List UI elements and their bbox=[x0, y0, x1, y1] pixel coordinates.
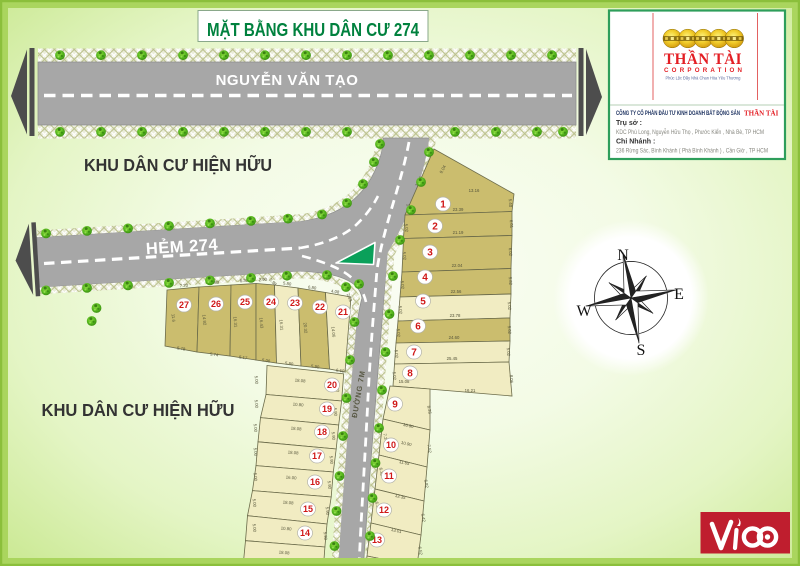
svg-text:20.32: 20.32 bbox=[303, 322, 309, 334]
svg-text:1: 1 bbox=[440, 200, 446, 211]
svg-text:2: 2 bbox=[432, 222, 438, 233]
svg-text:11.6: 11.6 bbox=[171, 314, 177, 323]
svg-text:10.80: 10.80 bbox=[293, 402, 305, 408]
svg-text:5.00: 5.00 bbox=[253, 423, 259, 432]
svg-text:5.02: 5.02 bbox=[392, 371, 398, 380]
svg-text:5.02: 5.02 bbox=[398, 305, 404, 314]
svg-text:23.39: 23.39 bbox=[453, 207, 464, 212]
svg-text:4: 4 bbox=[422, 273, 428, 284]
svg-text:Trụ sở :: Trụ sở : bbox=[616, 120, 642, 127]
svg-text:CÔNG TY CỔ PHẦN ĐẦU TƯ KINH DO: CÔNG TY CỔ PHẦN ĐẦU TƯ KINH DOANH BẤT ĐỘ… bbox=[616, 109, 740, 117]
svg-text:KHU DÂN CƯ HIỆN HỮU: KHU DÂN CƯ HIỆN HỮU bbox=[84, 154, 272, 175]
svg-text:15: 15 bbox=[303, 504, 313, 514]
svg-text:5.00: 5.00 bbox=[254, 399, 260, 408]
svg-text:5.00: 5.00 bbox=[252, 523, 258, 532]
svg-text:N: N bbox=[617, 247, 629, 264]
svg-text:5.02: 5.02 bbox=[396, 328, 402, 337]
svg-text:THẦN TÀI: THẦN TÀI bbox=[664, 50, 742, 68]
svg-text:S: S bbox=[637, 342, 646, 359]
svg-text:22.04: 22.04 bbox=[452, 263, 463, 268]
svg-text:7.20: 7.20 bbox=[179, 283, 188, 289]
svg-text:6.02: 6.02 bbox=[508, 248, 513, 257]
svg-text:5.00: 5.00 bbox=[254, 375, 260, 384]
svg-text:21.19: 21.19 bbox=[453, 230, 464, 235]
svg-text:12: 12 bbox=[379, 505, 389, 515]
svg-text:26: 26 bbox=[211, 299, 221, 309]
svg-text:16.21: 16.21 bbox=[465, 388, 476, 393]
svg-text:18.08: 18.08 bbox=[288, 450, 300, 456]
svg-text:20: 20 bbox=[327, 380, 337, 390]
svg-text:8: 8 bbox=[407, 369, 413, 380]
svg-text:5.02: 5.02 bbox=[394, 349, 400, 358]
svg-text:CORPORATION: CORPORATION bbox=[664, 67, 743, 74]
svg-text:21: 21 bbox=[338, 307, 348, 317]
svg-text:7: 7 bbox=[411, 348, 417, 359]
svg-text:18.08: 18.08 bbox=[279, 550, 291, 556]
svg-text:6.01: 6.01 bbox=[509, 220, 514, 229]
svg-text:18.08: 18.08 bbox=[283, 500, 295, 506]
svg-text:THẦN TÀI: THẦN TÀI bbox=[744, 110, 779, 118]
svg-text:5.02: 5.02 bbox=[507, 326, 512, 335]
svg-text:16.31: 16.31 bbox=[233, 316, 239, 328]
svg-text:MẶT BẰNG KHU DÂN CƯ 274: MẶT BẰNG KHU DÂN CƯ 274 bbox=[207, 19, 419, 40]
svg-text:16.31: 16.31 bbox=[279, 319, 285, 331]
svg-text:Phúc Lộc Đầy Nhà Chan Hòa Yêu: Phúc Lộc Đầy Nhà Chan Hòa Yêu Thương bbox=[666, 76, 741, 82]
svg-text:5.02: 5.02 bbox=[506, 348, 511, 357]
svg-text:17: 17 bbox=[312, 451, 322, 461]
svg-text:2.90: 2.90 bbox=[258, 277, 267, 283]
svg-text:19: 19 bbox=[322, 404, 332, 414]
svg-text:27: 27 bbox=[179, 300, 189, 310]
svg-text:25.45: 25.45 bbox=[447, 356, 458, 361]
svg-text:5: 5 bbox=[420, 297, 426, 308]
svg-text:24: 24 bbox=[266, 297, 276, 307]
svg-text:25: 25 bbox=[240, 297, 250, 307]
svg-text:6: 6 bbox=[415, 322, 421, 333]
svg-text:236 Rừng Sác, Bình Khánh ( Phà: 236 Rừng Sác, Bình Khánh ( Phà Bình Khán… bbox=[616, 146, 768, 155]
svg-text:11: 11 bbox=[384, 471, 394, 481]
svg-text:8.06: 8.06 bbox=[509, 375, 514, 384]
svg-text:9: 9 bbox=[392, 400, 398, 411]
svg-text:5.02: 5.02 bbox=[404, 223, 410, 232]
svg-text:18.08: 18.08 bbox=[291, 426, 303, 432]
svg-text:5.90: 5.90 bbox=[331, 431, 337, 440]
svg-text:5.02: 5.02 bbox=[402, 251, 408, 260]
svg-text:5.90: 5.90 bbox=[327, 480, 333, 489]
svg-text:5.82: 5.82 bbox=[508, 277, 513, 286]
svg-text:5.40: 5.40 bbox=[508, 199, 513, 208]
svg-text:10.80: 10.80 bbox=[281, 526, 293, 532]
svg-text:KHU DÂN CƯ HIỆN HỮU: KHU DÂN CƯ HIỆN HỮU bbox=[42, 399, 235, 420]
svg-text:22.56: 22.56 bbox=[451, 289, 462, 294]
svg-text:24.60: 24.60 bbox=[449, 335, 460, 340]
svg-text:5.90: 5.90 bbox=[323, 531, 329, 540]
svg-text:5.00: 5.00 bbox=[252, 498, 258, 507]
svg-text:KDC Phú Long, Nguyễn Hữu Thọ ,: KDC Phú Long, Nguyễn Hữu Thọ , Phước Kiể… bbox=[616, 127, 764, 136]
svg-text:16.43: 16.43 bbox=[259, 317, 265, 329]
svg-text:16.00: 16.00 bbox=[286, 475, 298, 481]
svg-text:5.90: 5.90 bbox=[325, 506, 331, 515]
svg-text:23: 23 bbox=[290, 298, 300, 308]
svg-text:5.02: 5.02 bbox=[507, 302, 512, 311]
svg-text:16: 16 bbox=[310, 477, 320, 487]
svg-text:Chi Nhánh :: Chi Nhánh : bbox=[616, 139, 655, 146]
svg-text:10: 10 bbox=[386, 440, 396, 450]
svg-text:5.02: 5.02 bbox=[400, 280, 406, 289]
svg-text:3: 3 bbox=[427, 248, 433, 259]
svg-text:14: 14 bbox=[300, 528, 310, 538]
svg-text:22: 22 bbox=[315, 302, 325, 312]
svg-text:14.06: 14.06 bbox=[331, 326, 337, 338]
svg-text:18: 18 bbox=[317, 427, 327, 437]
svg-text:W: W bbox=[576, 303, 592, 320]
svg-text:5.00: 5.00 bbox=[253, 472, 259, 481]
svg-text:NGUYỄN VĂN TẠO: NGUYỄN VĂN TẠO bbox=[216, 72, 359, 89]
svg-text:18.08: 18.08 bbox=[295, 378, 307, 384]
svg-text:14.92: 14.92 bbox=[202, 314, 208, 326]
svg-text:5.90: 5.90 bbox=[329, 455, 335, 464]
svg-text:E: E bbox=[674, 286, 684, 303]
svg-text:13.16: 13.16 bbox=[469, 188, 480, 193]
svg-text:23.78: 23.78 bbox=[450, 313, 461, 318]
svg-text:5.00: 5.00 bbox=[253, 447, 259, 456]
